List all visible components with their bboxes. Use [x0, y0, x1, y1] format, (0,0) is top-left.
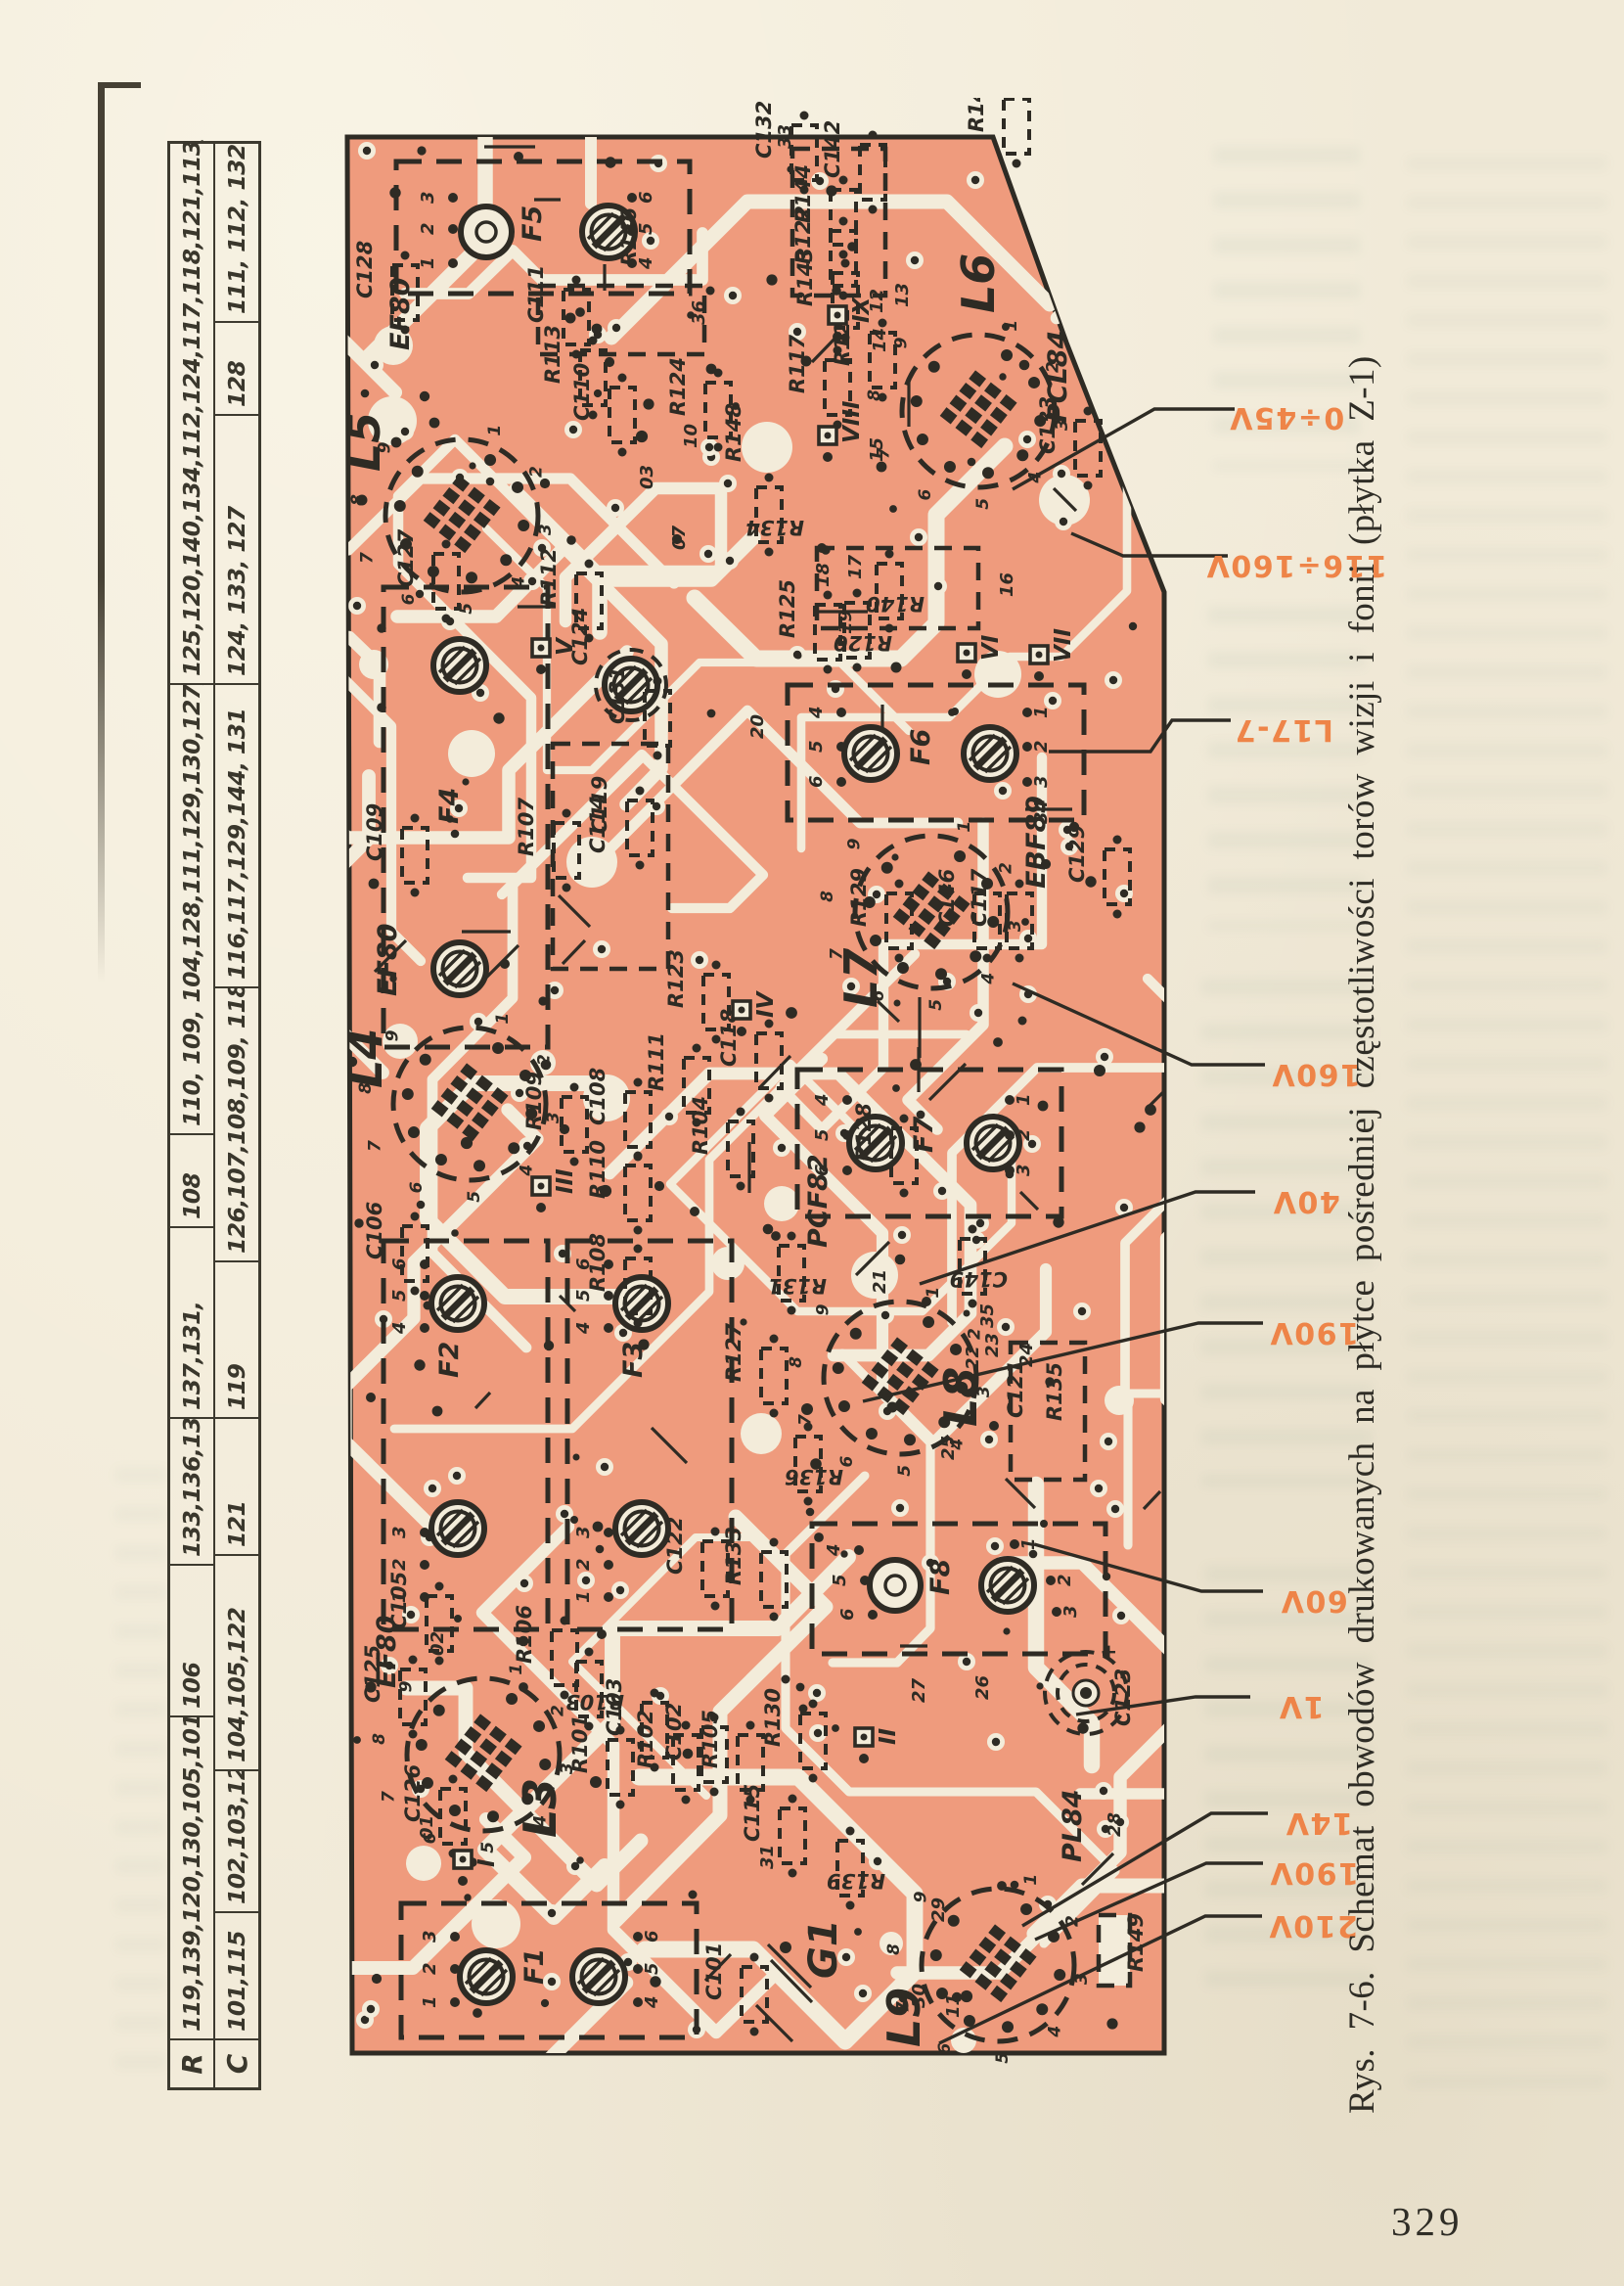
table-cell: 137,131,	[170, 1226, 213, 1417]
svg-text:I: I	[474, 1858, 500, 1867]
table-cell: 119,139,120,130,105,101,102,103	[170, 1715, 213, 2038]
svg-text:PCF82: PCF82	[803, 1154, 834, 1248]
svg-text:36: 36	[689, 300, 709, 325]
svg-text:1: 1	[507, 1664, 526, 1675]
svg-text:R102: R102	[634, 1710, 657, 1768]
svg-text:R146: R146	[617, 207, 641, 266]
table-cell: 116,117,129,144, 131	[215, 683, 258, 986]
svg-text:5: 5	[642, 1962, 662, 1975]
bleed-through	[115, 1468, 166, 2075]
svg-text:2: 2	[1055, 1574, 1075, 1586]
component-table: R119,139,120,130,105,101,102,103106133,1…	[167, 141, 261, 2090]
svg-text:23: 23	[982, 1333, 1003, 1357]
svg-text:F4: F4	[434, 788, 465, 824]
svg-text:G1: G1	[801, 1919, 846, 1979]
table-row-label: C	[215, 2038, 258, 2087]
svg-text:F7: F7	[909, 1117, 939, 1153]
svg-text:3: 3	[418, 191, 438, 204]
table-row-c: C101,115102,103,126104,105,122121119126,…	[215, 144, 258, 2087]
svg-text:4: 4	[812, 1093, 833, 1107]
svg-text:C122: C122	[663, 1517, 687, 1575]
voltage-annotation: L17-7	[1234, 712, 1333, 747]
svg-text:C146: C146	[935, 869, 959, 927]
svg-text:C132: C132	[752, 101, 776, 159]
svg-text:L6: L6	[952, 253, 1005, 313]
svg-text:5: 5	[478, 1842, 498, 1853]
svg-text:C117: C117	[968, 868, 991, 927]
svg-text:R125: R125	[776, 579, 799, 638]
svg-text:6: 6	[407, 1181, 427, 1193]
svg-text:8: 8	[787, 1356, 806, 1368]
svg-text:3: 3	[389, 1526, 410, 1538]
svg-text:6: 6	[642, 1930, 662, 1943]
svg-text:R105: R105	[699, 1710, 722, 1768]
svg-text:L3: L3	[514, 1778, 566, 1838]
table-cell: 104,105,122	[215, 1554, 258, 1769]
svg-text:1: 1	[1014, 1093, 1034, 1106]
svg-text:R143: R143	[793, 248, 817, 306]
svg-text:C115: C115	[741, 1784, 764, 1842]
pcb-diagram: F5321654F4F2654321F3654321F1321654F64561…	[293, 98, 1389, 2192]
svg-text:4: 4	[510, 576, 529, 589]
svg-text:6: 6	[837, 1608, 858, 1621]
svg-text:3: 3	[573, 1526, 594, 1538]
svg-text:2: 2	[534, 1054, 554, 1066]
table-cell: 128	[215, 321, 258, 414]
svg-text:5: 5	[973, 498, 993, 510]
svg-text:15: 15	[867, 437, 887, 462]
svg-text:01: 01	[417, 1815, 437, 1840]
svg-text:3: 3	[1060, 1605, 1081, 1618]
svg-text:F2: F2	[434, 1342, 465, 1378]
svg-text:5: 5	[812, 1128, 833, 1141]
svg-text:9: 9	[844, 838, 864, 849]
svg-text:8: 8	[370, 1733, 389, 1745]
svg-text:F8: F8	[925, 1559, 956, 1595]
svg-text:C106: C106	[363, 1202, 386, 1259]
svg-text:4: 4	[824, 1543, 844, 1557]
book-page-scan: R119,139,120,130,105,101,102,103106133,1…	[0, 0, 1624, 2286]
table-cell: 121	[215, 1417, 258, 1554]
svg-text:C142: C142	[821, 120, 844, 178]
svg-text:PL84: PL84	[1058, 1789, 1088, 1862]
svg-text:C128: C128	[353, 241, 377, 298]
svg-text:C111: C111	[524, 265, 548, 323]
svg-text:3: 3	[420, 1930, 440, 1943]
voltage-annotation: 1V	[1278, 1689, 1324, 1723]
svg-text:4: 4	[979, 973, 999, 985]
svg-text:9: 9	[813, 1303, 833, 1315]
svg-text:34: 34	[1031, 800, 1052, 824]
page-number: 329	[1391, 2198, 1464, 2245]
svg-text:21: 21	[870, 1269, 890, 1294]
svg-text:III: III	[553, 1168, 578, 1194]
svg-text:R110: R110	[586, 1140, 609, 1199]
svg-text:1: 1	[485, 425, 505, 436]
svg-text:C129: C129	[1065, 825, 1089, 883]
svg-text:R135: R135	[1043, 1362, 1066, 1421]
svg-text:4: 4	[389, 1321, 410, 1335]
svg-text:5: 5	[926, 999, 946, 1011]
table-cell: 124, 133, 127	[215, 414, 258, 683]
svg-text:R129: R129	[847, 868, 871, 927]
svg-text:26: 26	[972, 1675, 993, 1700]
svg-text:11: 11	[943, 1993, 964, 2018]
svg-text:R101: R101	[568, 1714, 592, 1773]
svg-text:L4: L4	[339, 1029, 392, 1088]
voltage-annotation: 0÷45V	[1229, 400, 1344, 434]
svg-text:14: 14	[870, 328, 890, 352]
svg-text:R111: R111	[645, 1032, 668, 1091]
bleed-through	[1407, 157, 1607, 2094]
table-cell: 108	[170, 1133, 213, 1226]
svg-text:4: 4	[642, 1995, 662, 2009]
svg-text:16: 16	[997, 572, 1017, 597]
svg-text:1: 1	[420, 1995, 440, 2008]
svg-text:29: 29	[928, 1897, 949, 1922]
svg-text:V: V	[553, 636, 578, 656]
svg-text:5: 5	[830, 1574, 850, 1586]
svg-text:L5: L5	[338, 412, 390, 472]
svg-text:C126: C126	[401, 1764, 425, 1822]
svg-text:30: 30	[909, 1984, 929, 2008]
svg-text:R148: R148	[722, 403, 745, 462]
voltage-annotation: 60V	[1280, 1583, 1347, 1618]
svg-text:8: 8	[348, 494, 368, 506]
svg-text:1: 1	[1031, 706, 1052, 718]
svg-text:R136: R136	[785, 1465, 843, 1488]
svg-text:C105: C105	[387, 1572, 411, 1629]
svg-text:4: 4	[518, 1165, 537, 1177]
svg-text:8: 8	[884, 1943, 904, 1955]
svg-text:13: 13	[892, 283, 913, 307]
svg-text:4: 4	[806, 706, 827, 719]
svg-text:+: +	[1097, 1643, 1120, 1661]
svg-text:5: 5	[465, 1191, 484, 1203]
table-cell: 125,120,140,134,112,124,117,118,121,113,…	[170, 140, 213, 683]
svg-text:27: 27	[909, 1677, 929, 1703]
svg-text:1: 1	[1002, 320, 1021, 332]
svg-text:R145: R145	[965, 98, 988, 132]
svg-text:1: 1	[955, 821, 974, 833]
svg-text:1: 1	[418, 256, 438, 269]
svg-text:6: 6	[935, 2042, 955, 2054]
svg-text:C124: C124	[568, 608, 592, 665]
svg-text:C110: C110	[570, 363, 594, 421]
svg-text:C108: C108	[586, 1068, 609, 1125]
svg-text:IX: IX	[849, 296, 875, 323]
svg-text:1: 1	[924, 1287, 943, 1299]
svg-text:C125: C125	[361, 1645, 384, 1703]
figure-caption: Rys. 7-6. Schemat obwodów drukowanych na…	[1341, 96, 1392, 2114]
svg-text:7: 7	[380, 1791, 399, 1803]
svg-text:R117: R117	[786, 335, 809, 393]
svg-text:R149: R149	[1124, 1913, 1148, 1972]
svg-text:1: 1	[1021, 1874, 1041, 1886]
svg-text:F5: F5	[518, 206, 548, 242]
svg-text:5: 5	[389, 1289, 410, 1302]
svg-text:33: 33	[775, 124, 795, 149]
svg-text:07: 07	[669, 525, 690, 550]
svg-text:2: 2	[389, 1558, 410, 1571]
table-row-r: R119,139,120,130,105,101,102,103106133,1…	[170, 144, 215, 2087]
svg-text:R107: R107	[515, 798, 538, 856]
svg-text:F6: F6	[906, 729, 936, 765]
svg-text:6: 6	[399, 593, 419, 605]
svg-text:10: 10	[681, 424, 701, 448]
svg-text:VII: VII	[1051, 628, 1076, 663]
svg-text:02: 02	[428, 1631, 448, 1656]
svg-text:R124: R124	[666, 357, 690, 416]
svg-text:R140: R140	[866, 592, 925, 616]
table-row-label: R	[170, 2038, 213, 2087]
svg-text:7: 7	[358, 552, 378, 564]
svg-text:20: 20	[747, 714, 768, 739]
svg-text:5: 5	[895, 1465, 915, 1477]
svg-text:5: 5	[806, 740, 827, 753]
svg-text:R123: R123	[664, 949, 688, 1008]
voltage-annotation: 40V	[1272, 1184, 1339, 1218]
svg-text:R139: R139	[827, 1869, 885, 1893]
svg-text:R109: R109	[522, 1072, 546, 1130]
svg-text:R131: R131	[768, 1274, 827, 1298]
svg-text:5: 5	[993, 2052, 1013, 2064]
svg-text:3: 3	[1031, 775, 1052, 788]
svg-text:6: 6	[636, 191, 656, 204]
svg-text:3: 3	[536, 524, 556, 535]
svg-text:2: 2	[996, 862, 1015, 874]
svg-text:C114: C114	[586, 796, 609, 853]
svg-text:C109: C109	[363, 803, 386, 861]
svg-text:17: 17	[845, 554, 866, 579]
svg-text:C102: C102	[662, 1703, 686, 1760]
svg-text:35: 35	[977, 1303, 998, 1328]
svg-text:R128: R128	[852, 1103, 876, 1162]
svg-text:R127: R127	[722, 1323, 745, 1382]
svg-text:28: 28	[1105, 1812, 1125, 1837]
svg-text:L7: L7	[835, 948, 887, 1008]
table-cell: 110, 109, 104,128,111,129,130,127,123, 1…	[170, 683, 213, 1133]
svg-text:C127: C127	[394, 528, 418, 587]
svg-text:R113: R113	[541, 325, 564, 384]
svg-text:18: 18	[813, 563, 834, 587]
svg-text:IV: IV	[753, 989, 779, 1018]
svg-text:C133: C133	[1036, 396, 1060, 454]
page-edge-shadow	[98, 82, 105, 983]
svg-text:F1: F1	[519, 1948, 550, 1985]
svg-text:6: 6	[806, 775, 827, 788]
svg-text:25: 25	[938, 1436, 959, 1460]
svg-text:2: 2	[1031, 740, 1052, 753]
svg-text:EF80: EF80	[373, 924, 403, 996]
svg-text:6: 6	[916, 488, 935, 500]
svg-text:2: 2	[526, 466, 546, 478]
svg-text:4: 4	[1046, 2026, 1065, 2038]
svg-text:2: 2	[418, 222, 438, 235]
svg-text:II: II	[876, 1727, 901, 1745]
svg-text:19: 19	[835, 610, 856, 634]
svg-text:8: 8	[818, 891, 837, 902]
svg-text:VI: VI	[978, 634, 1004, 661]
table-cell: 126,107,108,109, 118	[215, 986, 258, 1260]
svg-text:2: 2	[1014, 1128, 1034, 1141]
svg-text:31: 31	[757, 1845, 778, 1869]
table-cell: 119	[215, 1260, 258, 1417]
svg-text:2: 2	[420, 1962, 440, 1975]
svg-text:R104: R104	[689, 1096, 712, 1155]
svg-text:22: 22	[963, 1346, 983, 1370]
table-cell: 133,136,135	[170, 1417, 213, 1564]
svg-text:2: 2	[548, 1705, 567, 1716]
svg-text:R112: R112	[537, 548, 561, 607]
svg-text:4: 4	[573, 1321, 594, 1335]
svg-text:EF80: EF80	[385, 278, 416, 350]
table-cell: 111, 112, 132	[215, 140, 258, 321]
svg-text:C131: C131	[606, 666, 629, 724]
table-cell: 106	[170, 1564, 213, 1715]
svg-text:1: 1	[573, 1590, 594, 1603]
svg-text:R108: R108	[586, 1233, 609, 1292]
svg-text:3: 3	[1014, 1164, 1034, 1176]
svg-text:C123: C123	[1111, 1669, 1135, 1726]
svg-text:F3: F3	[618, 1342, 649, 1378]
svg-text:R106: R106	[513, 1605, 536, 1664]
svg-text:1: 1	[493, 1013, 513, 1025]
svg-text:2: 2	[573, 1558, 594, 1571]
svg-text:R133: R133	[722, 1527, 745, 1585]
table-cell: 101,115	[215, 1911, 258, 2038]
svg-text:7: 7	[366, 1140, 385, 1152]
table-cell: 102,103,126	[215, 1769, 258, 1911]
page-edge-corner	[98, 82, 141, 88]
svg-text:03: 03	[637, 465, 657, 489]
svg-text:VIII: VIII	[839, 400, 865, 443]
svg-text:6: 6	[389, 1257, 410, 1270]
svg-text:R134: R134	[745, 516, 804, 539]
svg-text:C101: C101	[702, 1943, 726, 2000]
